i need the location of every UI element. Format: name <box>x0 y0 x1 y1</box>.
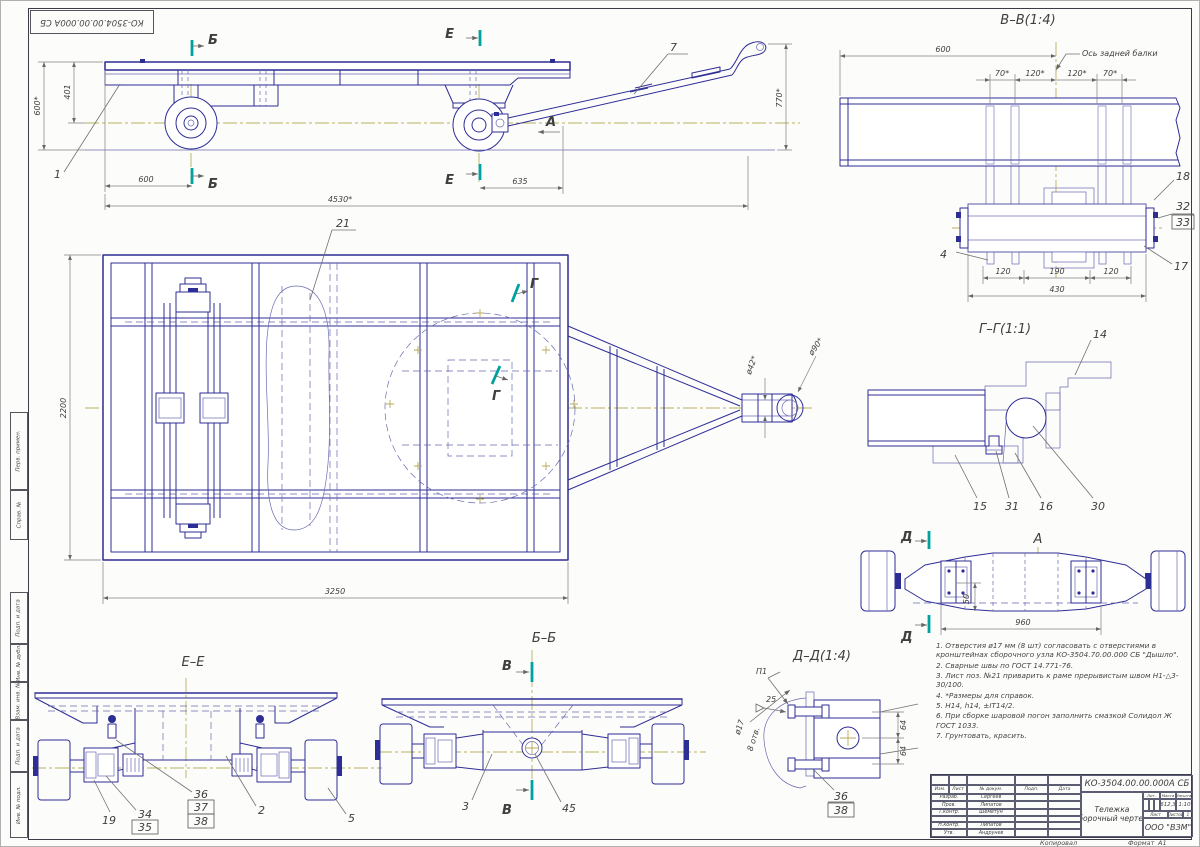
dim-635: 635 <box>512 177 527 186</box>
callout-34: 34 <box>138 808 152 821</box>
dim-600: 600 <box>138 175 153 184</box>
dim-d90: ø90* <box>806 336 825 358</box>
dim-d42: ø42* <box>744 355 759 377</box>
vv-dim-70r: 70* <box>1103 69 1117 78</box>
section-vv-title: В–В(1:4) <box>1000 13 1055 28</box>
side-view-sections: Б Б Е Е А <box>192 27 560 192</box>
role-nkontr: Н.контр. <box>931 822 967 830</box>
gg-body <box>868 362 1111 463</box>
scale-value: 1:10 <box>1176 799 1193 811</box>
dim-600s: 600* <box>33 96 42 115</box>
drawing-sheet: КО-3504.00.00.000А СБ Перв. примен. Спра… <box>0 0 1200 847</box>
section-b-label-bottom: Б <box>208 177 218 192</box>
section-e-label-bottom: Е <box>445 173 454 188</box>
callout-31: 31 <box>1005 500 1019 513</box>
a-axle-body <box>905 553 1146 611</box>
callout-36: 36 <box>194 788 208 801</box>
callout-2: 2 <box>258 804 265 817</box>
vv-dim-120b2: 120 <box>1103 267 1118 276</box>
section-vv: В–В(1:4) <box>828 8 1192 308</box>
ee-arms-hubs <box>70 743 305 782</box>
section-ee-title: Е–Е <box>182 655 206 670</box>
callout-17: 17 <box>1174 260 1188 273</box>
vv-dim-120l: 120* <box>1025 69 1044 78</box>
callout-30: 30 <box>1091 500 1105 513</box>
callout-21: 21 <box>336 217 350 230</box>
vv-dim-430: 430 <box>1049 285 1064 294</box>
section-ee: Е–Е <box>28 648 388 844</box>
dd-dim-64-bot: 64 <box>899 746 908 756</box>
a-dim-50: 50 <box>962 594 971 604</box>
format-label: Формат <box>1128 839 1154 847</box>
callout-16: 16 <box>1039 500 1053 513</box>
plan-view: Г Г 21 2200 3250 ø42* ø90* <box>30 208 830 648</box>
section-v-label-top: В <box>502 659 512 674</box>
note-2: 2. Сварные швы по ГОСТ 14.771-76. <box>936 661 1192 670</box>
section-e-label-top: Е <box>445 27 454 42</box>
view-a-arrow-label: А <box>545 115 556 130</box>
callout-3: 3 <box>462 800 469 813</box>
role-prov: Пров. <box>931 801 967 809</box>
section-g-label-top: Г <box>530 277 539 292</box>
margin-stamp-podp1: Подп. и дата <box>10 592 28 644</box>
section-dd: Д–Д(1:4) П1 25 ø1 <box>722 628 940 828</box>
role-utv: Утв. <box>931 829 967 837</box>
callout-1: 1 <box>54 168 61 181</box>
vv-dim-120r: 120* <box>1067 69 1086 78</box>
view-a-title: А <box>1033 532 1043 547</box>
callout-35: 35 <box>138 821 152 834</box>
copied-label: Копировал <box>1040 839 1077 847</box>
side-view-body <box>85 42 775 151</box>
bb-sections: В В <box>502 659 532 818</box>
section-gg: Г–Г(1:1) 14 15 31 16 30 <box>853 318 1191 530</box>
vv-dim-70l: 70* <box>995 69 1009 78</box>
note-5: 5. Н14, h14, ±IT14/2. <box>936 701 1192 710</box>
scale-header: Масштаб <box>1176 792 1193 799</box>
section-bb: Б–Б В В <box>372 622 712 844</box>
dd-body <box>764 692 918 788</box>
title-block-info: КО-3504.00.00.000А СБ Тележка сборочный … <box>1081 775 1193 837</box>
section-v-label-bottom: В <box>502 803 512 818</box>
callout-18: 18 <box>1176 170 1190 183</box>
role-tkontr: Т.контр. <box>931 809 967 817</box>
section-gg-title: Г–Г(1:1) <box>979 322 1031 337</box>
name-prov: Липатов <box>967 801 1015 809</box>
section-d-label-top: Д <box>900 530 913 545</box>
col-doc: № докум. <box>967 785 1015 793</box>
mass-header: Масса <box>1160 792 1176 799</box>
name-utv: Андрунев <box>967 829 1015 837</box>
section-bb-title: Б–Б <box>532 631 556 646</box>
format-value: А1 <box>1158 839 1167 847</box>
col-sign: Подп. <box>1015 785 1048 793</box>
margin-stamp-perv: Перв. примен. <box>10 412 28 490</box>
doc-number: КО-3504.00.00.000А СБ <box>1081 775 1193 792</box>
ee-wheels <box>33 740 342 800</box>
dd-callout-38: 38 <box>834 804 848 817</box>
callout-4: 4 <box>940 248 947 261</box>
section-g-label-bottom: Г <box>492 389 501 404</box>
dim-401: 401 <box>63 84 72 99</box>
lit-header: Лит. <box>1143 792 1160 799</box>
name-nkontr: Липатов <box>967 822 1015 830</box>
vv-beam <box>840 98 1180 166</box>
col-date: Дата <box>1048 785 1081 793</box>
section-dd-title: Д–Д(1:4) <box>792 649 851 664</box>
callout-32: 32 <box>1176 200 1190 213</box>
vv-dim-120b1: 120 <box>995 267 1010 276</box>
callout-33: 33 <box>1176 216 1190 229</box>
sheets-header: Листов <box>1168 811 1183 818</box>
dd-callout-36: 36 <box>834 790 848 803</box>
sheet-header: Лист <box>1143 811 1168 818</box>
dd-dim-d17: ø17 <box>733 718 747 737</box>
callout-7: 7 <box>670 41 677 54</box>
margin-stamp-podp2: Подп. и дата <box>10 720 28 772</box>
a-dim-960: 960 <box>1015 618 1030 627</box>
callout-5: 5 <box>348 812 355 825</box>
callout-45: 45 <box>562 802 576 815</box>
technical-notes: 1. Отверстия ø17 мм (8 шт) согласовать с… <box>936 641 1192 741</box>
name-tkontr: Шеметун <box>967 809 1015 817</box>
note-7: 7. Грунтовать, красить. <box>936 731 1192 740</box>
role-razrab: Разраб. <box>931 794 967 802</box>
callout-19: 19 <box>102 814 116 827</box>
dim-3250: 3250 <box>325 587 345 596</box>
mass-value: 612,3 <box>1160 799 1176 811</box>
callout-37: 37 <box>194 801 208 814</box>
dd-weld: П1 25 <box>756 667 788 712</box>
name-razrab: Сергеев <box>967 794 1015 802</box>
callout-15: 15 <box>973 500 987 513</box>
dim-2200: 2200 <box>59 398 68 418</box>
callout-14: 14 <box>1093 328 1107 341</box>
margin-stamp-inv-podl: Инв. № подл. <box>10 772 28 838</box>
note-1: 1. Отверстия ø17 мм (8 шт) согласовать с… <box>936 641 1192 660</box>
title-block: Изм. Лист № докум. Подп. Дата Разраб. Се… <box>930 774 1192 838</box>
bb-callouts: 3 45 <box>462 754 576 815</box>
section-b-label-top: Б <box>208 33 218 48</box>
sheets-value: 1 <box>1183 811 1193 818</box>
callout-38: 38 <box>194 815 208 828</box>
dim-4530: 4530* <box>328 195 352 204</box>
note-6: 6. При сборке шаровой погон заполнить см… <box>936 711 1192 730</box>
note-4: 4. *Размеры для справок. <box>936 691 1192 700</box>
vv-dim-190: 190 <box>1049 267 1064 276</box>
margin-stamp-vzam: Взам. инв. № <box>10 682 28 720</box>
col-izm: Изм. <box>931 785 949 793</box>
margin-stamp-sprav: Справ. № <box>10 490 28 540</box>
title-block-signatures: Изм. Лист № докум. Подп. Дата Разраб. Се… <box>931 775 1081 837</box>
vv-axis-note: Ось задней балки <box>1056 49 1158 70</box>
margin-stamp-inv-dubl: Инв. № дубл. <box>10 644 28 682</box>
dd-dim-64-top: 64 <box>899 720 908 730</box>
ee-center-box <box>135 708 240 760</box>
dd-weld-ref: П1 <box>756 667 767 676</box>
company-name: ООО "ВЗМ" <box>1143 818 1193 837</box>
dim-770: 770* <box>775 88 784 107</box>
product-name: Тележка сборочный чертеж <box>1081 792 1143 837</box>
vv-axis-label: Ось задней балки <box>1082 49 1158 58</box>
vv-dim-600: 600 <box>935 45 950 54</box>
dd-dim-holes: 8 отв. <box>746 726 762 752</box>
col-list: Лист <box>949 785 967 793</box>
note-3: 3. Лист поз. №21 приварить к раме прерыв… <box>936 671 1192 690</box>
